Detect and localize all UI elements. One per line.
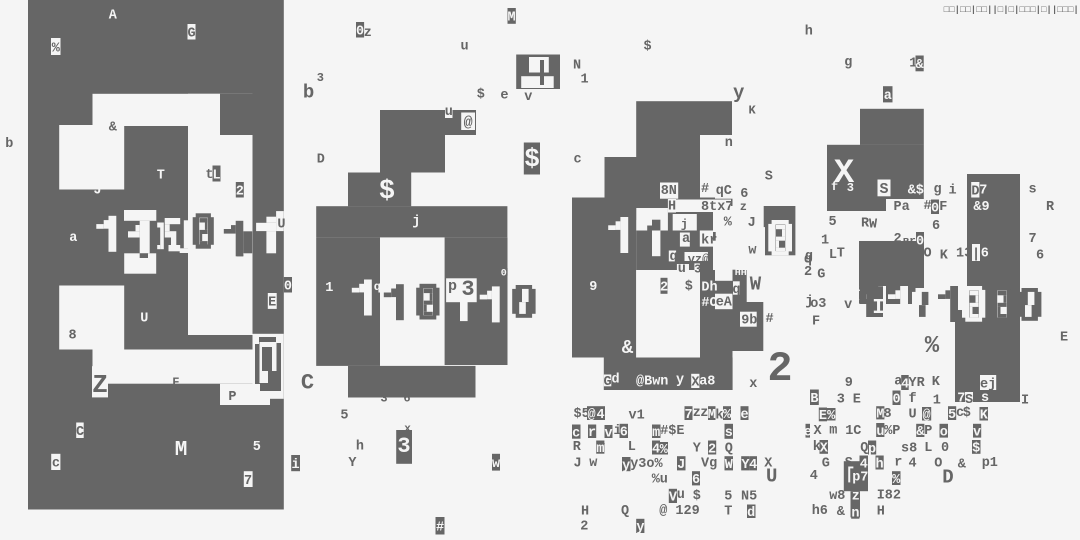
svg-text:6: 6	[692, 473, 700, 488]
svg-text:$: $	[693, 489, 701, 504]
svg-text:s: s	[725, 426, 733, 441]
svg-text:Q: Q	[621, 504, 629, 519]
svg-text:h6: h6	[812, 504, 828, 519]
svg-text:Pa: Pa	[894, 200, 910, 215]
svg-text:u: u	[678, 262, 686, 277]
svg-text:K: K	[940, 249, 949, 264]
svg-text:L: L	[924, 441, 932, 456]
svg-text:Vg: Vg	[701, 457, 717, 472]
svg-text:C: C	[852, 296, 860, 311]
svg-text:b: b	[303, 81, 314, 103]
svg-text:Y: Y	[348, 456, 357, 471]
svg-text:3: 3	[461, 277, 474, 302]
svg-text:H: H	[581, 505, 589, 520]
svg-text:a8: a8	[699, 375, 715, 390]
svg-text:i: i	[292, 458, 300, 473]
svg-text:N5: N5	[741, 490, 757, 505]
svg-text:8tx7: 8tx7	[701, 200, 733, 215]
svg-text:w: w	[492, 457, 501, 472]
svg-text:Y: Y	[693, 442, 702, 457]
svg-text:3: 3	[837, 393, 845, 408]
svg-text:2: 2	[767, 345, 792, 393]
svg-text:Z: Z	[92, 370, 108, 400]
svg-text:d: d	[747, 506, 755, 521]
svg-text:$: $	[685, 280, 693, 295]
svg-text:N: N	[573, 59, 581, 74]
svg-text:P: P	[228, 390, 236, 405]
svg-text:2: 2	[708, 442, 716, 457]
svg-text:F: F	[812, 315, 820, 330]
svg-text:X: X	[820, 442, 829, 457]
svg-text:7: 7	[244, 474, 252, 489]
svg-text:U: U	[140, 312, 148, 327]
svg-text:4: 4	[810, 469, 818, 484]
svg-text:13: 13	[956, 247, 972, 262]
svg-text:4: 4	[749, 458, 757, 473]
svg-text:&: &	[916, 58, 925, 73]
svg-text:#: #	[766, 312, 774, 327]
svg-text:0: 0	[892, 393, 900, 408]
svg-text:5: 5	[724, 490, 732, 505]
svg-text:D: D	[317, 153, 325, 168]
svg-text:y: y	[733, 82, 745, 104]
svg-text:a: a	[682, 232, 690, 247]
svg-text:7: 7	[1029, 232, 1037, 247]
svg-text:v: v	[973, 425, 981, 440]
svg-text:6: 6	[1036, 249, 1044, 264]
svg-text:q: q	[732, 283, 740, 298]
svg-text:@: @	[587, 408, 595, 423]
svg-text:8N: 8N	[661, 184, 677, 199]
svg-text:p7: p7	[852, 471, 868, 486]
svg-text:m: m	[652, 426, 660, 441]
svg-text:9: 9	[845, 376, 853, 391]
svg-text:X: X	[814, 424, 823, 439]
svg-text:y: y	[676, 373, 684, 388]
svg-text:3: 3	[397, 434, 410, 459]
svg-text:J: J	[677, 458, 685, 473]
svg-text:6: 6	[932, 219, 940, 234]
svg-text:e: e	[804, 425, 812, 440]
svg-text:E: E	[268, 296, 276, 311]
svg-text:U: U	[909, 408, 917, 423]
svg-text:v: v	[604, 426, 612, 441]
svg-text:4: 4	[596, 408, 604, 423]
svg-text:%u: %u	[652, 473, 668, 488]
svg-text:$: $	[972, 442, 980, 457]
svg-text:y: y	[622, 459, 630, 474]
svg-text:M: M	[175, 439, 188, 462]
svg-text:I: I	[872, 297, 885, 320]
svg-text:n: n	[851, 506, 859, 521]
svg-text:%: %	[892, 473, 901, 488]
svg-text:e: e	[740, 408, 748, 423]
svg-text:9b: 9b	[741, 313, 757, 328]
svg-text:$: $	[644, 40, 652, 55]
svg-text:z: z	[740, 200, 747, 214]
svg-text:1: 1	[325, 281, 333, 296]
svg-text:□□|□□|□□||□|□|□□□|□||□□□||□|□|: □□|□□|□□||□|□|□□□|□||□□□||□|□|□□	[944, 5, 1080, 15]
svg-text:a: a	[69, 231, 77, 246]
svg-text:0: 0	[931, 202, 939, 217]
svg-text:o: o	[940, 425, 948, 440]
svg-text:6: 6	[403, 392, 410, 406]
svg-text:C: C	[301, 371, 314, 396]
svg-text:n: n	[725, 136, 733, 151]
svg-text:h: h	[876, 457, 884, 472]
svg-text:q: q	[374, 280, 381, 294]
svg-text:j: j	[681, 218, 688, 232]
svg-text:&: &	[837, 505, 846, 520]
svg-text:f: f	[831, 180, 838, 194]
svg-text:0: 0	[501, 268, 507, 279]
svg-text:%: %	[723, 408, 732, 423]
svg-text:j: j	[412, 215, 420, 230]
svg-text:@Bwn: @Bwn	[636, 375, 668, 390]
svg-text:3: 3	[694, 263, 701, 277]
svg-text:5: 5	[829, 215, 837, 230]
svg-text:&: &	[622, 337, 634, 359]
svg-text:M: M	[508, 11, 516, 26]
svg-text:5: 5	[340, 409, 348, 424]
svg-text:v: v	[524, 90, 532, 105]
svg-text:G: G	[817, 268, 825, 283]
svg-text:&$: &$	[908, 184, 924, 199]
svg-text:w: w	[589, 456, 598, 471]
svg-text:K: K	[749, 104, 757, 118]
svg-text:#$E: #$E	[660, 424, 684, 439]
svg-text:#: #	[701, 182, 709, 197]
svg-text:%: %	[52, 41, 61, 56]
svg-text:S: S	[879, 181, 888, 198]
svg-text:m: m	[596, 442, 604, 457]
svg-text:3: 3	[317, 71, 324, 85]
svg-text:$: $	[963, 406, 971, 421]
svg-text:s8: s8	[901, 442, 917, 457]
svg-text:6: 6	[620, 426, 628, 441]
svg-text:0: 0	[284, 280, 292, 295]
svg-text:$: $	[379, 177, 395, 207]
svg-text:6: 6	[981, 247, 989, 262]
svg-text:u: u	[461, 39, 469, 54]
svg-text:1C: 1C	[845, 424, 861, 439]
svg-text:J: J	[574, 457, 582, 472]
svg-text:#: #	[436, 521, 444, 536]
svg-text:g: g	[844, 55, 852, 70]
svg-text:8: 8	[884, 407, 892, 422]
svg-text:f: f	[909, 392, 917, 407]
svg-text:C: C	[76, 425, 84, 440]
svg-text:G: G	[187, 27, 195, 42]
svg-text:D: D	[942, 466, 953, 488]
svg-text:x: x	[404, 423, 411, 435]
svg-text:E: E	[853, 393, 861, 408]
svg-text:F: F	[939, 200, 947, 215]
svg-text:0: 0	[941, 441, 949, 456]
svg-text:7: 7	[979, 184, 987, 199]
svg-text:r: r	[588, 426, 596, 441]
svg-text:2: 2	[580, 520, 588, 535]
svg-text:J: J	[94, 184, 102, 199]
svg-text:r: r	[894, 455, 902, 470]
svg-text:P: P	[924, 424, 932, 439]
svg-text:4: 4	[909, 457, 917, 472]
svg-text:o3: o3	[810, 297, 826, 312]
svg-text:R: R	[573, 440, 582, 455]
svg-text:W: W	[869, 217, 878, 232]
svg-text:5: 5	[948, 408, 956, 423]
svg-text:U: U	[766, 466, 777, 488]
svg-text:W: W	[725, 458, 734, 473]
svg-text:L: L	[212, 168, 220, 183]
svg-text:d: d	[957, 215, 965, 230]
svg-text:z: z	[364, 26, 372, 41]
svg-text:x: x	[749, 377, 757, 392]
svg-text:7: 7	[684, 408, 692, 423]
svg-text:I82: I82	[877, 489, 901, 504]
svg-text:&: &	[852, 281, 861, 296]
svg-text:G: G	[822, 457, 830, 472]
svg-text:S: S	[765, 170, 773, 185]
svg-text:E: E	[1060, 330, 1068, 345]
svg-text:%: %	[827, 409, 836, 424]
svg-text:c: c	[52, 457, 60, 472]
svg-text:%P: %P	[884, 424, 900, 439]
svg-text:E: E	[819, 409, 827, 424]
svg-text:1: 1	[810, 177, 823, 200]
svg-text:a: a	[884, 89, 892, 104]
svg-text:T: T	[837, 247, 845, 262]
svg-text:O: O	[924, 247, 932, 262]
svg-text:B: B	[829, 280, 837, 295]
svg-text:U: U	[277, 218, 285, 233]
svg-text:c: c	[572, 426, 580, 441]
svg-text:|: |	[972, 247, 980, 262]
svg-text:$: $	[524, 144, 540, 174]
svg-text:H: H	[668, 200, 676, 215]
svg-text:e: e	[500, 89, 508, 104]
svg-text:3: 3	[380, 392, 387, 406]
svg-text:q: q	[670, 250, 678, 265]
svg-text:y3o%: y3o%	[630, 457, 663, 472]
svg-text:$: $	[477, 88, 485, 103]
svg-text:K: K	[980, 409, 989, 424]
svg-text:&: &	[109, 121, 118, 136]
svg-text:u: u	[677, 488, 685, 503]
svg-text:H: H	[877, 505, 885, 520]
svg-text:R: R	[1046, 200, 1055, 215]
svg-text:W: W	[750, 274, 762, 296]
svg-text:s: s	[1029, 182, 1037, 197]
svg-text:I: I	[1021, 394, 1029, 409]
svg-text:Dh: Dh	[701, 281, 717, 296]
svg-text:d: d	[612, 372, 620, 387]
svg-text:@ 129: @ 129	[659, 504, 700, 519]
svg-text:@: @	[923, 409, 931, 424]
svg-text:2: 2	[894, 232, 902, 247]
svg-text:K: K	[932, 375, 941, 390]
svg-text:8: 8	[69, 329, 77, 344]
svg-text:F: F	[172, 376, 179, 390]
svg-text:%: %	[925, 333, 940, 360]
svg-text:i: i	[949, 184, 957, 199]
svg-text:YR: YR	[909, 376, 926, 391]
svg-text:9: 9	[589, 280, 597, 295]
svg-text:2: 2	[236, 185, 244, 200]
svg-text:s: s	[981, 391, 989, 406]
svg-text:q: q	[804, 252, 812, 267]
svg-text:1: 1	[933, 394, 941, 409]
svg-text:3: 3	[847, 181, 854, 195]
svg-text:L: L	[628, 440, 636, 455]
svg-text:p: p	[868, 442, 876, 457]
svg-text:G: G	[603, 375, 611, 390]
svg-text:%: %	[660, 443, 669, 458]
svg-text:@: @	[464, 115, 473, 132]
svg-text:O: O	[934, 457, 942, 472]
svg-text:T: T	[157, 169, 165, 184]
svg-text:w8: w8	[829, 489, 845, 504]
svg-text:g: g	[934, 182, 942, 197]
svg-text:v1: v1	[629, 409, 645, 424]
svg-text:5: 5	[253, 440, 261, 455]
svg-text:T: T	[724, 505, 732, 520]
svg-text:p1: p1	[982, 456, 998, 471]
svg-text:k: k	[860, 248, 868, 263]
svg-text:u: u	[445, 105, 453, 120]
svg-text:B: B	[810, 392, 818, 407]
svg-text:qC: qC	[716, 184, 732, 199]
svg-text:2: 2	[660, 281, 668, 296]
svg-text:%: %	[724, 216, 733, 231]
svg-text:1: 1	[581, 73, 589, 88]
svg-text:kr: kr	[701, 234, 717, 249]
svg-text:w: w	[748, 243, 757, 258]
svg-text:ʀr: ʀr	[903, 236, 916, 248]
svg-text:A: A	[109, 9, 118, 24]
svg-text:Q: Q	[725, 442, 733, 457]
svg-text:c: c	[574, 152, 582, 167]
svg-text:p: p	[448, 278, 457, 295]
svg-text:b: b	[5, 137, 13, 152]
svg-text:bN: bN	[837, 312, 853, 327]
svg-text:z: z	[852, 489, 860, 504]
svg-text:1: 1	[821, 234, 829, 249]
svg-text:h: h	[805, 25, 813, 40]
svg-text:h: h	[356, 440, 364, 455]
svg-text:y: y	[636, 521, 644, 536]
svg-text:&: &	[958, 458, 967, 473]
svg-text:#: #	[861, 200, 869, 215]
svg-text:J: J	[748, 216, 756, 231]
svg-text:2 &9: 2 &9	[957, 200, 989, 215]
svg-text:m: m	[829, 424, 837, 439]
svg-text:нн: нн	[735, 268, 747, 279]
